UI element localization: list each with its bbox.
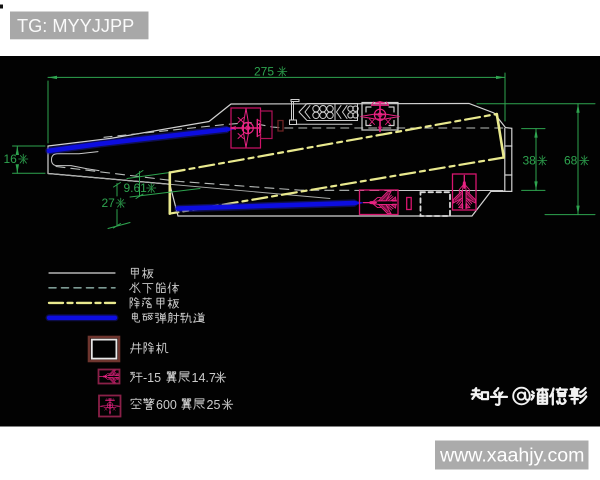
svg-text:25: 25 <box>207 398 221 412</box>
svg-text:9.61: 9.61 <box>124 181 148 195</box>
svg-text:68: 68 <box>564 154 578 168</box>
svg-text:600: 600 <box>156 398 177 412</box>
svg-text:14.7: 14.7 <box>192 371 216 385</box>
svg-text:27: 27 <box>102 196 116 210</box>
svg-text:275: 275 <box>254 65 274 79</box>
svg-text:38: 38 <box>523 154 537 168</box>
svg-text:16: 16 <box>4 152 18 166</box>
svg-text:-15: -15 <box>143 371 161 385</box>
svg-text:TG: MYYJJPP: TG: MYYJJPP <box>17 16 134 36</box>
svg-text:www.xaahjy.com: www.xaahjy.com <box>439 445 584 467</box>
